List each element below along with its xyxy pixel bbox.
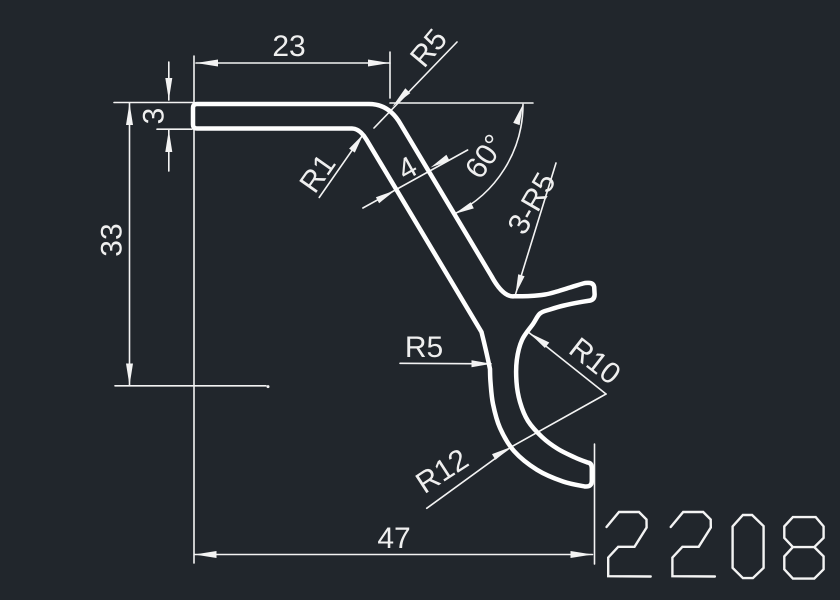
svg-text:33: 33 — [96, 223, 129, 256]
svg-text:47: 47 — [377, 522, 410, 555]
svg-text:3: 3 — [137, 108, 170, 125]
svg-text:R5: R5 — [405, 331, 443, 364]
svg-text:23: 23 — [272, 30, 305, 63]
